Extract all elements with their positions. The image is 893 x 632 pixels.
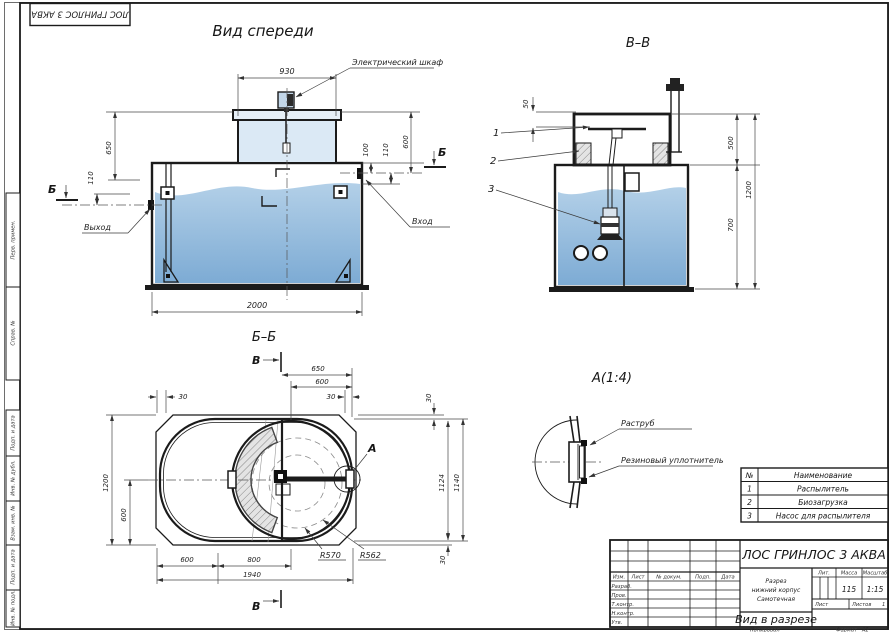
bio-block-left [576, 143, 591, 164]
plan-marker-v-top: В [252, 352, 281, 372]
vv-tank-base [549, 287, 694, 292]
margin-cell-perv: Перв. примен. [11, 221, 17, 260]
svg-text:1: 1 [493, 128, 499, 139]
dim-2000: 2000 [152, 292, 362, 316]
view-name: Вид в разрезе [735, 613, 817, 626]
svg-text:Б: Б [438, 146, 446, 159]
footer-format-value: А2 [861, 628, 869, 632]
plan-marker-v-bottom: В [252, 590, 281, 613]
prop-lit: Лит. [817, 571, 830, 577]
margin-cell-vzam: Взам. инв. № [11, 505, 17, 540]
svg-text:2: 2 [490, 156, 496, 167]
svg-text:1140: 1140 [453, 474, 461, 492]
socket-leader: Раструб [590, 419, 692, 445]
svg-text:30: 30 [179, 393, 188, 401]
svg-text:500: 500 [727, 136, 735, 150]
front-tank-water [155, 183, 360, 283]
plan-top-dims: 650 600 30 30 [148, 365, 360, 420]
front-view-title: Вид спереди [212, 22, 314, 40]
vv-hole-left [574, 246, 588, 260]
margin-cell-podp1: Подп. и дата [11, 415, 17, 450]
svg-text:Распылитель: Распылитель [797, 485, 849, 494]
plan-left-dims: 1200 600 [102, 415, 156, 545]
front-tank-base [145, 285, 369, 290]
prop-mass: Масса [841, 571, 858, 577]
plan-bb-title: Б–Б [252, 330, 276, 345]
top-left-stamp: ЛОС ГРИНЛОС 3 АКВА [30, 4, 130, 26]
svg-text:930: 930 [279, 67, 294, 76]
doc-line-3: Самотечная [757, 596, 795, 603]
svg-text:600: 600 [315, 378, 329, 386]
margin-cell-inv-dubl: Инв. № дубл. [11, 460, 17, 496]
parts-col-name: Наименование [794, 471, 853, 480]
role-prov: Пров. [612, 593, 627, 599]
doc-line-2: нижний корпус [752, 587, 801, 594]
section-view-vv: В–В [488, 36, 760, 292]
sheet-frame: ЛОС ГРИНЛОС 3 АКВА Перв. примен. Справ. … [5, 3, 889, 630]
plan-right-dims: 30 1124 1140 30 [354, 393, 468, 564]
svg-text:800: 800 [247, 556, 261, 564]
footer-format-label: Формат [836, 628, 858, 632]
svg-text:2: 2 [747, 498, 752, 507]
sheet-label: Лист [814, 602, 829, 608]
svg-text:100: 100 [362, 143, 370, 157]
cabinet-leader: Электрический шкаф [296, 58, 443, 97]
svg-text:1200: 1200 [745, 181, 753, 199]
svg-text:1: 1 [747, 485, 752, 494]
svg-text:R570: R570 [320, 551, 341, 560]
col-podp: Подп. [695, 575, 711, 581]
parts-col-num: № [745, 471, 754, 480]
svg-text:Резиновый уплотнитель: Резиновый уплотнитель [621, 456, 724, 465]
mass-value: 115 [842, 585, 857, 594]
svg-text:600: 600 [120, 508, 128, 522]
detail-view-a: А(1:4) Раструб Резиновый уплотнитель [532, 371, 724, 508]
bio-block-right [653, 143, 668, 164]
socket-joint [569, 440, 587, 484]
doc-line-1: Разрез [765, 578, 786, 585]
svg-text:30: 30 [327, 393, 336, 401]
title-block: Изм. Лист № докум. Подп. Дата Разраб. Пр… [610, 540, 888, 632]
svg-text:1940: 1940 [243, 571, 261, 579]
section-vv-title: В–В [626, 36, 650, 51]
svg-text:Биозагрузка: Биозагрузка [798, 498, 848, 507]
svg-text:А: А [367, 442, 377, 455]
svg-text:Б: Б [48, 183, 56, 196]
svg-text:650: 650 [311, 365, 325, 373]
svg-text:3: 3 [488, 184, 494, 195]
svg-text:1124: 1124 [438, 474, 446, 492]
role-nkontr: Н.контр. [612, 611, 635, 617]
svg-text:700: 700 [727, 218, 735, 232]
cabinet-label: Электрический шкаф [351, 58, 443, 67]
product-name: ЛОС ГРИНЛОС 3 АКВА [741, 547, 886, 562]
vv-tank-water [558, 187, 686, 285]
svg-text:650: 650 [105, 141, 113, 155]
svg-text:1200: 1200 [102, 474, 110, 492]
parts-table: № Наименование 1 Распылитель 2 Биозагруз… [741, 468, 888, 522]
detail-a-title: А(1:4) [591, 371, 632, 386]
svg-text:2000: 2000 [247, 301, 267, 310]
svg-text:R562: R562 [360, 551, 381, 560]
svg-text:30: 30 [439, 555, 447, 564]
scale-value: 1:15 [867, 585, 884, 594]
svg-text:Насос для распылителя: Насос для распылителя [776, 512, 871, 521]
svg-text:Раструб: Раструб [621, 419, 655, 428]
section-marker-b-right: Б [424, 146, 446, 167]
vv-hole-right [593, 246, 607, 260]
margin-cell-podp2: Подп. и дата [11, 549, 17, 584]
sheets-value: 1 [882, 602, 885, 608]
left-margin-cells: Перв. примен. Справ. № Подп. и дата Инв.… [6, 193, 20, 627]
col-list: Лист [630, 575, 645, 581]
inlet-leader: Вход [366, 180, 450, 227]
svg-text:В: В [252, 354, 260, 367]
margin-cell-inv-podl: Инв. № подл. [11, 590, 17, 626]
svg-text:В: В [252, 600, 260, 613]
prop-scale: Масштаб [863, 571, 888, 577]
margin-cell-sprav: Справ. № [11, 320, 17, 345]
svg-text:110: 110 [382, 143, 390, 157]
svg-text:600: 600 [402, 135, 410, 149]
svg-text:30: 30 [425, 393, 433, 402]
sheets-label: Листов [851, 602, 871, 608]
svg-text:600: 600 [180, 556, 194, 564]
drawing-sheet: ЛОС ГРИНЛОС 3 АКВА Перв. примен. Справ. … [0, 0, 893, 632]
plan-view-bb: Б–Б В [102, 330, 468, 613]
col-izm: Изм. [613, 575, 625, 581]
role-utv: Утв. [612, 620, 623, 626]
section-marker-b-left: Б [48, 183, 78, 200]
col-data: Дата [720, 575, 734, 581]
col-doc: № докум. [655, 575, 682, 581]
role-tkontr: Т.контр. [612, 602, 634, 608]
inlet-label: Вход [412, 217, 433, 226]
outlet-label: Выход [84, 223, 111, 232]
svg-text:3: 3 [747, 512, 752, 521]
front-view: Вид спереди [48, 22, 450, 316]
outlet-leader: Выход [82, 209, 150, 233]
footer-copied: Копировал [750, 628, 780, 632]
seal-leader: Резиновый уплотнитель [589, 456, 724, 477]
svg-text:110: 110 [87, 171, 95, 185]
svg-text:50: 50 [522, 99, 530, 108]
role-razrab: Разраб. [612, 584, 632, 590]
top-left-stamp-text: ЛОС ГРИНЛОС 3 АКВА [31, 9, 130, 19]
